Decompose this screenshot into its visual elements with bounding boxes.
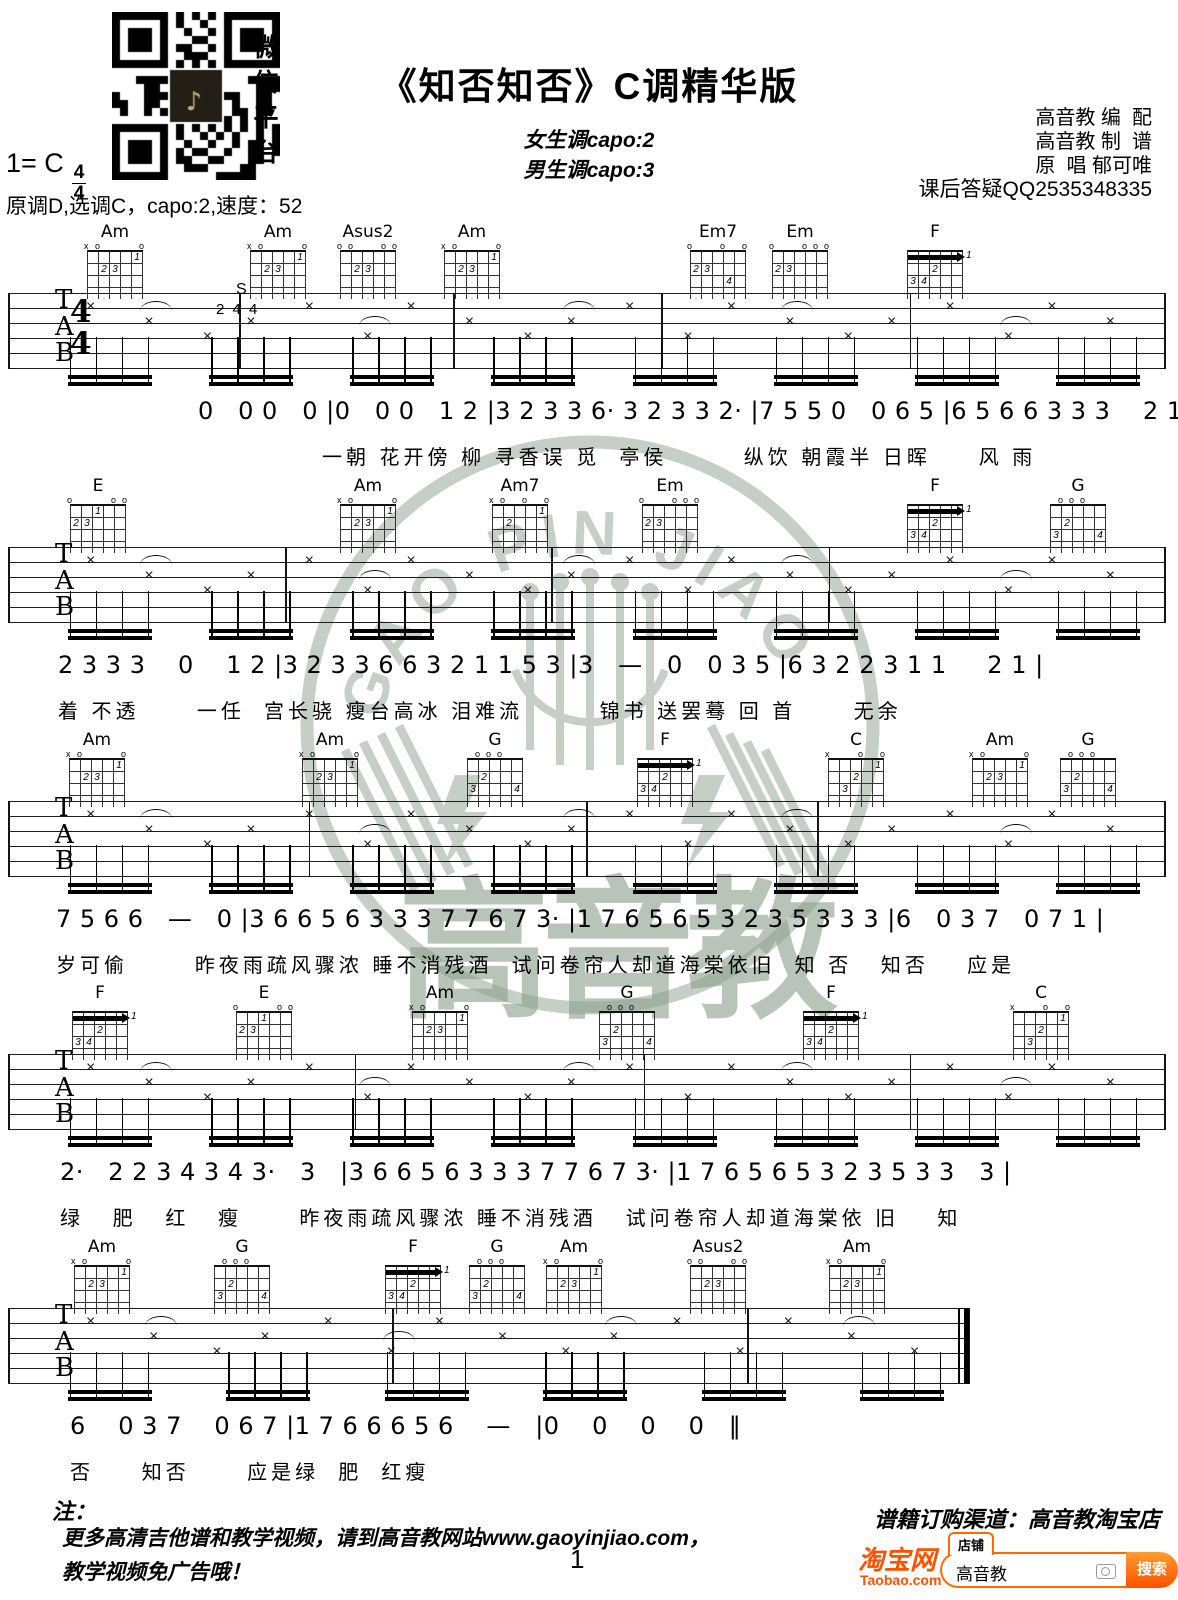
taobao-shop-tab[interactable]: 店铺 — [948, 1532, 994, 1555]
chord-string-markers: oooo — [337, 242, 399, 250]
jianpu-line-2: 2 3 3 3 0 1 2 |3 2 3 3 6 6 3 2 1 1 5 3 |… — [58, 651, 1044, 679]
chord-grid: 123 — [236, 1011, 292, 1060]
beam-bar — [385, 1397, 469, 1401]
chord-grid: 123 — [546, 1265, 602, 1314]
chord-string-markers: xoo — [825, 750, 887, 758]
note-stem — [1110, 591, 1111, 636]
chord-label: Asus2 — [337, 223, 399, 242]
barline — [747, 1308, 749, 1384]
finger-number: 2 — [773, 264, 783, 275]
note-stem — [465, 1352, 466, 1397]
barre-bar — [386, 1270, 436, 1275]
beam-bar — [1056, 883, 1140, 887]
chord-label: Am7 — [489, 477, 551, 496]
chord-diagram-g: Gooo234 — [1047, 477, 1109, 553]
chord-label: Em — [639, 477, 701, 496]
beam-bar — [226, 1397, 310, 1401]
note-stem — [713, 337, 714, 382]
tab-staff-2: TAB×××××××××××××××××××× — [8, 547, 1166, 647]
chord-grid: 123 — [250, 250, 306, 299]
credit-notator: 高音教 制 谱 — [1035, 131, 1152, 153]
finger-number: 3 — [386, 1291, 396, 1302]
note-stem — [352, 1098, 353, 1143]
staff-letter-t: T — [55, 795, 72, 821]
finger-number: 1 — [119, 1267, 129, 1278]
beam-bar — [209, 375, 293, 379]
chord-label: Am — [247, 223, 309, 242]
tie-arc — [383, 1331, 415, 1341]
search-button[interactable]: 搜索 — [1126, 1552, 1178, 1588]
camera-icon[interactable] — [1096, 1564, 1116, 1579]
finger-number: 2 — [408, 1279, 418, 1290]
beam-bar — [915, 1136, 999, 1140]
lyrics-line-2: 着 不透 一任 宫长骁 瘦台高冰 泪难流 锦书 送罢蓦 回 首 无余 — [58, 695, 902, 724]
note-stem — [1110, 1098, 1111, 1143]
note-stem — [211, 337, 212, 382]
finger-number: 3 — [1051, 530, 1061, 541]
chord-string-markers — [800, 1003, 862, 1011]
note-stem — [571, 845, 572, 890]
search-query[interactable]: 高音教 — [956, 1560, 1007, 1585]
note-stem — [782, 1352, 783, 1397]
chord-diagram-asus2: Asus2oooo23 — [337, 223, 399, 299]
strum-x: × — [149, 1329, 158, 1345]
note-stem — [519, 845, 520, 890]
staff-line — [8, 1308, 970, 1309]
chord-diagram-g: Gooo234 — [464, 731, 526, 807]
chord-string-markers: xoo — [71, 1257, 133, 1265]
chord-label: C — [1010, 984, 1072, 1003]
jianpu-line-5: 6 0 3 7 0 6 7 |1 7 6 6 6 5 6 — |0 0 0 0 … — [70, 1412, 741, 1440]
chord-label: G — [1057, 731, 1119, 750]
finger-number: 4 — [644, 1037, 654, 1048]
strum-x: × — [1106, 568, 1115, 584]
tie-arc — [563, 809, 595, 819]
system-4: F1234Eooo123Amxoo123Gooo234F1234Cxoo123 … — [0, 984, 1178, 1238]
note-stem — [237, 1098, 238, 1143]
finger-number: 3 — [82, 518, 92, 529]
strum-x: × — [625, 299, 634, 315]
note-stem — [635, 337, 636, 382]
note-stem — [1058, 1098, 1059, 1143]
chord-string-markers: oooo — [769, 242, 831, 250]
chord-diagram-em: Emoooo23 — [639, 477, 701, 553]
beam-bar — [350, 629, 434, 633]
strum-x: × — [246, 314, 255, 330]
finger-number: 2 — [826, 1025, 836, 1036]
beam-bar — [774, 375, 858, 379]
finger-number: 3 — [435, 1025, 445, 1036]
finger-number: 2 — [660, 772, 670, 783]
tie-arc — [843, 1316, 875, 1326]
note-stem — [148, 337, 149, 382]
strum-x: × — [260, 1329, 269, 1345]
finger-number: 2 — [481, 1279, 491, 1290]
finger-number: 3 — [470, 1291, 480, 1302]
chord-string-markers: xoo — [543, 1257, 605, 1265]
finger-number: 1 — [132, 252, 142, 263]
system-2: Eooo123Amxoo123Am7xooo12Emoooo23F1234Goo… — [0, 477, 1178, 731]
staff-line — [8, 353, 1166, 354]
chord-grid: 123 — [828, 758, 884, 807]
tie-arc — [359, 316, 391, 326]
strum-x: × — [625, 553, 634, 569]
strum-x: × — [144, 1075, 153, 1091]
chord-string-markers: oooo — [639, 496, 701, 504]
staff-line — [8, 622, 1166, 623]
strum-x: × — [465, 822, 474, 838]
strum-x: × — [246, 1075, 255, 1091]
chord-label: Am — [84, 223, 146, 242]
chord-grid: 234 — [599, 1011, 655, 1060]
note-stem — [888, 1352, 889, 1397]
strum-x: × — [625, 1060, 634, 1076]
finger-number: 3 — [1061, 784, 1071, 795]
finger-number: 4 — [724, 276, 734, 287]
note-stem — [404, 337, 405, 382]
finger-number: 2 — [930, 264, 940, 275]
jianpu-line-3: 7 5 6 6 — 0 |3 6 6 5 6 3 3 3 7 7 6 7 3· … — [56, 905, 1104, 933]
strum-x: × — [1004, 329, 1013, 345]
note-stem — [519, 1098, 520, 1143]
finger-number: 1 — [93, 506, 103, 517]
barline — [8, 547, 10, 623]
beam-bar — [350, 1143, 434, 1147]
note-stem — [917, 591, 918, 636]
finger-number: 3 — [638, 784, 648, 795]
finger-number: 2 — [558, 1279, 568, 1290]
note-stem — [969, 1098, 970, 1143]
note-stem — [635, 1098, 636, 1143]
note-stem — [289, 1098, 290, 1143]
chord-label: Am — [299, 731, 361, 750]
finger-number: 2 — [81, 772, 91, 783]
chord-string-markers: xoo — [1010, 1003, 1072, 1011]
note-stem — [862, 1352, 863, 1397]
note-stem — [802, 337, 803, 382]
chord-label: E — [233, 984, 295, 1003]
strum-x: × — [683, 837, 692, 853]
tie-arc — [1000, 316, 1032, 326]
finger-number: 2 — [702, 1279, 712, 1290]
chord-diagram-am: Amxoo123 — [409, 984, 471, 1060]
chord-label: Am — [71, 1238, 133, 1257]
beam-bar — [68, 382, 152, 386]
barline — [355, 1054, 357, 1130]
note-stem — [306, 1352, 307, 1397]
system-3: Amxoo123Amxoo123Gooo234F1234Cxoo123Amxoo… — [0, 731, 1178, 985]
chord-label: Am — [409, 984, 471, 1003]
strum-x: × — [498, 1329, 507, 1345]
chord-string-markers: ooo — [67, 496, 129, 504]
chord-diagram-am: Amxoo123 — [543, 1238, 605, 1314]
tie-arc — [563, 301, 595, 311]
chord-grid: 234 — [214, 1265, 270, 1314]
strum-x: × — [305, 1060, 314, 1076]
staff-line — [8, 1054, 1166, 1055]
chord-label: F — [634, 731, 696, 750]
order-channel: 谱籍订购渠道：高音教淘宝店 — [874, 1502, 1160, 1534]
strum-x: × — [144, 568, 153, 584]
strum-x: × — [1047, 299, 1056, 315]
beam-bar — [860, 1390, 944, 1394]
note-stem — [661, 591, 662, 636]
barline — [1164, 547, 1166, 623]
note-stem — [597, 1352, 598, 1397]
chord-label: F — [69, 984, 131, 1003]
tab-staff-1: TAB44S2 4 4×××××××××××××××××××× — [8, 293, 1166, 393]
pattern-mark-s: S — [236, 281, 247, 299]
fret-position: 1 — [131, 1011, 137, 1022]
tie-arc — [563, 555, 595, 565]
note-stem — [687, 337, 688, 382]
strum-x: × — [567, 568, 576, 584]
note-stem — [802, 845, 803, 890]
beam-bar — [385, 1390, 469, 1394]
chord-grid: 23 — [690, 1265, 746, 1314]
note-stem — [943, 337, 944, 382]
strum-x: × — [363, 1090, 372, 1106]
beam-bar — [633, 629, 717, 633]
chord-grid: 123 — [340, 504, 396, 553]
beam-bar — [774, 883, 858, 887]
beam-bar — [633, 1143, 717, 1147]
beam-bar — [702, 1390, 786, 1394]
finger-number: 3 — [908, 276, 918, 287]
tie-arc — [140, 1062, 172, 1072]
beam-bar — [209, 382, 293, 386]
staff-line — [8, 1353, 970, 1354]
system-5: Amxoo123Gooo234F1234Gooo234Amxoo123Asus2… — [0, 1238, 1178, 1492]
beam-bar — [209, 1143, 293, 1147]
finger-number: 2 — [1062, 518, 1072, 529]
note-stem — [854, 1098, 855, 1143]
taobao-search-input[interactable]: 高音教 — [940, 1552, 1126, 1588]
staff-line — [8, 607, 1166, 608]
note-stem — [623, 1352, 624, 1397]
fret-position: 1 — [966, 504, 972, 515]
note-stem — [263, 845, 264, 890]
chord-diagram-f: F1234 — [382, 1238, 444, 1314]
credits: 高音教 编 配高音教 制 谱原 唱 郁可唯课后答疑QQ2535348335 — [919, 106, 1152, 202]
finger-number: 2 — [851, 772, 861, 783]
barline — [910, 293, 912, 369]
barre-bar — [908, 255, 958, 260]
note-stem — [969, 845, 970, 890]
tie-arc — [781, 555, 813, 565]
strum-x: × — [683, 329, 692, 345]
chord-diagram-am: Amxoo123 — [826, 1238, 888, 1314]
chord-label: Em7 — [687, 223, 749, 242]
staff-letter-t: T — [55, 1048, 72, 1074]
finger-number: 3 — [995, 772, 1005, 783]
finger-number: 2 — [1072, 772, 1082, 783]
jianpu-line-1: 0 0 0 0 |0 0 0 1 2 |3 2 3 3 6· 3 2 3 3 2… — [198, 397, 1178, 425]
tie-arc — [781, 301, 813, 311]
finger-number: 2 — [314, 772, 324, 783]
finger-number: 3 — [713, 1279, 723, 1290]
beam-bar — [774, 636, 858, 640]
chord-string-markers: ooo — [211, 1257, 273, 1265]
strum-x: × — [523, 329, 532, 345]
beam-bar — [68, 1390, 152, 1394]
strum-x: × — [1047, 807, 1056, 823]
chord-grid: 234 — [469, 1265, 525, 1314]
beam-bar — [1056, 636, 1140, 640]
chord-label: Am — [441, 223, 503, 242]
note-stem — [661, 337, 662, 382]
chord-diagram-am: Amxoo123 — [247, 223, 309, 299]
note-stem — [430, 337, 431, 382]
chord-label: F — [904, 477, 966, 496]
note-stem — [713, 591, 714, 636]
chord-diagram-g: Gooo234 — [466, 1238, 528, 1314]
finger-number: 2 — [456, 264, 466, 275]
finger-number: 1 — [295, 252, 305, 263]
note-stem — [378, 591, 379, 636]
note-stem — [263, 591, 264, 636]
chord-grid: 23 — [340, 250, 396, 299]
strum-x: × — [465, 1075, 474, 1091]
chord-grid: 234 — [467, 758, 523, 807]
strum-x: × — [844, 1090, 853, 1106]
staff-letter-t: T — [55, 541, 72, 567]
note-stem — [776, 845, 777, 890]
finger-number: 2 — [691, 264, 701, 275]
beam-bar — [491, 1136, 575, 1140]
finger-number: 1 — [874, 1267, 884, 1278]
note-stem — [96, 845, 97, 890]
barline — [644, 1054, 646, 1130]
note-stem — [1058, 337, 1059, 382]
tie-arc — [605, 1316, 637, 1326]
beam-bar — [491, 1143, 575, 1147]
chord-grid: 1234 — [907, 504, 963, 553]
chord-diagram-c: Cxoo123 — [825, 731, 887, 807]
time-top: 4 — [72, 163, 87, 184]
beam-bar — [491, 375, 575, 379]
chord-row-5: Amxoo123Gooo234F1234Gooo234Amxoo123Asus2… — [0, 1238, 1178, 1308]
note-stem — [254, 1352, 255, 1397]
finger-number: 3 — [1025, 1037, 1035, 1048]
strum-x: × — [1106, 1075, 1115, 1091]
chord-label: C — [825, 731, 887, 750]
chord-grid: 23 — [642, 504, 698, 553]
strum-x: × — [406, 299, 415, 315]
note-stem — [493, 591, 494, 636]
note-stem — [661, 1098, 662, 1143]
chord-row-4: F1234Eooo123Amxoo123Gooo234F1234Cxoo123 — [0, 984, 1178, 1054]
strum-x: × — [86, 1314, 95, 1330]
strum-x: × — [567, 1075, 576, 1091]
strum-x: × — [305, 553, 314, 569]
strum-x: × — [363, 837, 372, 853]
note-stem — [430, 1098, 431, 1143]
note-stem — [854, 337, 855, 382]
strum-x: × — [727, 1060, 736, 1076]
finger-number: 2 — [262, 264, 272, 275]
chord-label: Em — [769, 223, 831, 242]
strum-x: × — [86, 1060, 95, 1076]
barre-bar — [804, 1016, 854, 1021]
chord-label: G — [596, 984, 658, 1003]
note-stem — [493, 845, 494, 890]
tie-arc — [563, 1062, 595, 1072]
note-stem — [571, 1352, 572, 1397]
note-stem — [854, 591, 855, 636]
note-stem — [828, 845, 829, 890]
note-stem — [687, 845, 688, 890]
note-stem — [776, 591, 777, 636]
beam-bar — [209, 883, 293, 887]
chord-grid: 123 — [87, 250, 143, 299]
chord-string-markers: xoo — [409, 1003, 471, 1011]
note-stem — [969, 337, 970, 382]
chord-row-3: Amxoo123Amxoo123Gooo234F1234Cxoo123Amxoo… — [0, 731, 1178, 801]
finger-number: 2 — [424, 1025, 434, 1036]
chord-label: Am — [66, 731, 128, 750]
strum-x: × — [727, 553, 736, 569]
chord-diagram-am7: Am7xooo12 — [489, 477, 551, 553]
barre-bar — [908, 509, 958, 514]
staff-line — [8, 323, 1166, 324]
strum-x: × — [523, 583, 532, 599]
note-stem — [1136, 845, 1137, 890]
chord-label: Asus2 — [687, 1238, 749, 1257]
chord-string-markers: ooo — [464, 750, 526, 758]
note-stem — [404, 1098, 405, 1143]
finger-number: 3 — [273, 264, 283, 275]
note-stem — [70, 337, 71, 382]
finger-number: 2 — [95, 1025, 105, 1036]
beam-bar — [915, 375, 999, 379]
beam-bar — [68, 1143, 152, 1147]
tie-arc — [359, 824, 391, 834]
note-stem — [378, 1098, 379, 1143]
barline — [8, 1308, 10, 1384]
strum-x: × — [567, 822, 576, 838]
lyrics-line-5: 否 知否 应是绿 肥 红瘦 — [70, 1456, 429, 1485]
chord-string-markers: xoo — [84, 242, 146, 250]
chord-grid: 123 — [829, 1265, 885, 1314]
strum-x: × — [86, 553, 95, 569]
note-stem — [404, 591, 405, 636]
beam-bar — [209, 1136, 293, 1140]
chord-string-markers: xoo — [299, 750, 361, 758]
note-stem — [70, 1352, 71, 1397]
finger-number: 3 — [73, 1037, 83, 1048]
chord-diagram-f: F1234 — [634, 731, 696, 807]
chord-diagram-g: Gooo234 — [1057, 731, 1119, 807]
note-stem — [289, 337, 290, 382]
final-barline-thick — [964, 1308, 969, 1384]
staff-line — [8, 338, 1166, 339]
finger-number: 4 — [514, 1291, 524, 1302]
finger-number: 3 — [468, 784, 478, 795]
note-stem — [1084, 1098, 1085, 1143]
staff-line — [8, 1114, 1166, 1115]
barre-bar — [73, 1016, 123, 1021]
strum-x: × — [567, 314, 576, 330]
fret-position: 1 — [696, 758, 702, 769]
beam-bar — [774, 890, 858, 894]
strum-x: × — [844, 329, 853, 345]
barline — [453, 293, 455, 369]
credit-qq: 课后答疑QQ2535348335 — [919, 178, 1152, 201]
strum-x: × — [1106, 314, 1115, 330]
note-stem — [387, 1352, 388, 1397]
beam-bar — [491, 890, 575, 894]
